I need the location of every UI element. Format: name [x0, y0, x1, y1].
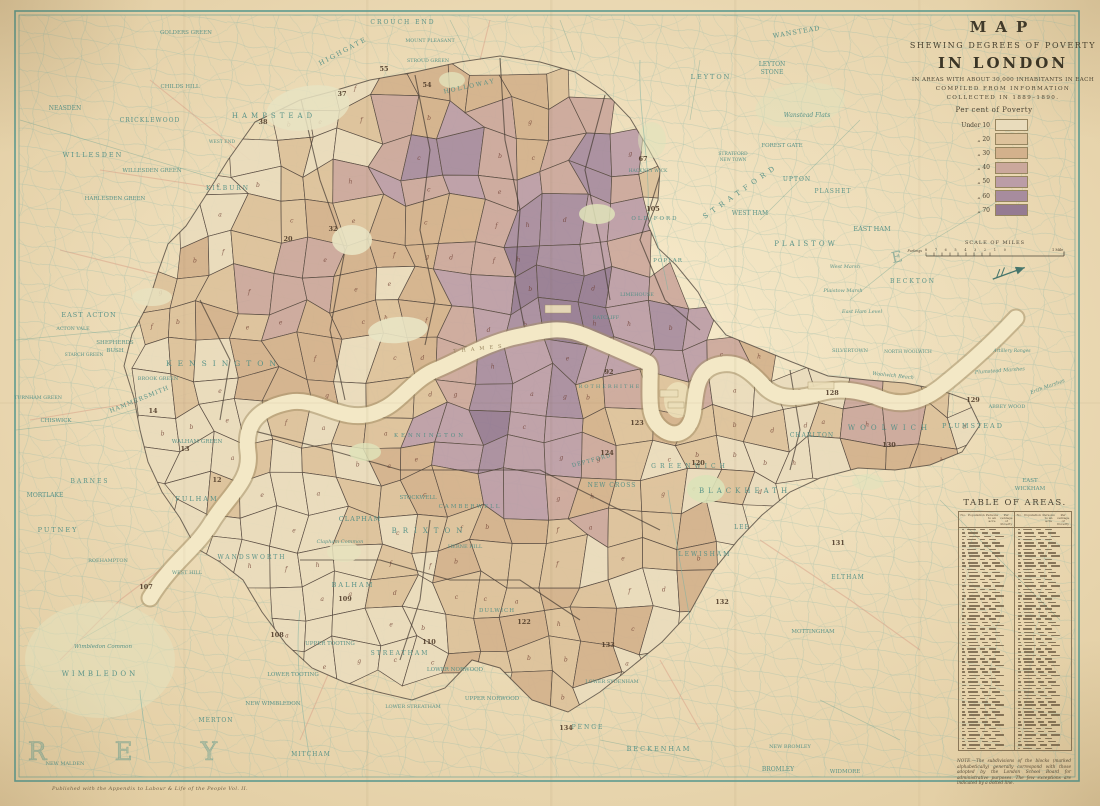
- svg-text:LOWER NORWOOD: LOWER NORWOOD: [427, 667, 484, 673]
- svg-text:g: g: [661, 491, 665, 498]
- svg-text:MORTLAKE: MORTLAKE: [27, 492, 64, 499]
- table-column-group: No.PopulationPersons to an acrePer centa…: [959, 512, 1015, 750]
- legend-swatch: [995, 176, 1028, 188]
- svg-text:32: 32: [328, 225, 337, 233]
- svg-text:1 Mile: 1 Mile: [1052, 248, 1063, 252]
- svg-text:131: 131: [831, 539, 845, 547]
- legend-label: „ 60: [944, 193, 995, 200]
- svg-text:Wanstead Flats: Wanstead Flats: [784, 112, 831, 119]
- svg-text:STARCH GREEN: STARCH GREEN: [65, 352, 104, 358]
- svg-text:LEYTON: LEYTON: [691, 73, 732, 81]
- svg-text:a: a: [515, 598, 519, 605]
- svg-text:MERTON: MERTON: [198, 717, 233, 724]
- svg-text:MOUNT PLEASANT: MOUNT PLEASANT: [405, 38, 455, 44]
- svg-text:d: d: [487, 327, 491, 334]
- map-title: MAP: [905, 18, 1100, 36]
- svg-text:14: 14: [148, 407, 158, 415]
- svg-text:BECKENHAM: BECKENHAM: [627, 745, 692, 753]
- svg-text:e: e: [218, 388, 222, 395]
- svg-text:ELTHAM: ELTHAM: [831, 574, 865, 581]
- svg-text:54: 54: [422, 81, 432, 89]
- svg-text:20: 20: [283, 235, 293, 243]
- svg-text:e: e: [621, 556, 625, 563]
- svg-text:WANDSWORTH: WANDSWORTH: [217, 554, 286, 561]
- legend-item: Under 10: [944, 118, 1044, 132]
- svg-text:NEW BROMLEY: NEW BROMLEY: [769, 744, 811, 750]
- svg-text:UPPER NORWOOD: UPPER NORWOOD: [465, 696, 520, 702]
- svg-text:CHISWICK: CHISWICK: [40, 418, 72, 424]
- svg-text:105: 105: [646, 205, 660, 213]
- svg-text:STONE: STONE: [761, 69, 784, 76]
- svg-text:h: h: [593, 320, 597, 327]
- svg-text:134: 134: [559, 724, 573, 732]
- svg-text:128: 128: [825, 389, 839, 397]
- svg-text:h: h: [491, 363, 495, 370]
- svg-text:SCALE OF MILES: SCALE OF MILES: [965, 240, 1025, 246]
- svg-text:WALHAM GREEN: WALHAM GREEN: [172, 439, 223, 445]
- svg-text:WICKHAM: WICKHAM: [1015, 486, 1046, 492]
- legend-items: Under 10„ 20„ 30„ 40„ 50„ 60„ 70: [944, 118, 1044, 217]
- svg-text:b: b: [527, 655, 531, 662]
- legend-heading: Per cent of Poverty: [944, 106, 1044, 114]
- svg-text:a: a: [384, 431, 388, 438]
- table-row: [959, 747, 1014, 750]
- svg-text:CHARLTON: CHARLTON: [790, 432, 834, 439]
- svg-text:108: 108: [270, 631, 284, 639]
- svg-text:h: h: [349, 178, 353, 185]
- svg-text:a: a: [530, 391, 534, 398]
- svg-text:d: d: [770, 428, 774, 435]
- svg-text:East Ham Level: East Ham Level: [841, 309, 883, 315]
- svg-text:h: h: [627, 321, 631, 328]
- table-note: NOTE.—The subdivisions of the blocks (ma…: [957, 759, 1071, 787]
- svg-text:BLACKHEATH: BLACKHEATH: [699, 487, 791, 495]
- svg-text:RATCLIFF: RATCLIFF: [593, 315, 620, 321]
- svg-text:92: 92: [604, 368, 613, 376]
- svg-text:h: h: [757, 354, 761, 361]
- svg-text:b: b: [189, 424, 193, 431]
- svg-text:12: 12: [212, 476, 221, 484]
- svg-text:e: e: [292, 528, 296, 535]
- svg-text:b: b: [485, 524, 489, 531]
- svg-text:123: 123: [630, 419, 644, 427]
- map-title-london: IN LONDON: [905, 54, 1100, 72]
- svg-text:h: h: [557, 621, 561, 628]
- svg-text:d: d: [393, 590, 397, 597]
- svg-text:67: 67: [638, 155, 647, 163]
- table-column-header: Per centage of Poverty: [1055, 512, 1071, 527]
- svg-text:a: a: [625, 661, 629, 668]
- svg-text:POPLAR: POPLAR: [653, 258, 683, 264]
- svg-text:d: d: [563, 217, 567, 224]
- svg-text:55: 55: [379, 65, 389, 73]
- svg-text:d: d: [421, 355, 425, 362]
- svg-text:d: d: [449, 255, 453, 262]
- svg-text:LEYTON: LEYTON: [759, 61, 786, 68]
- svg-text:BARNES: BARNES: [71, 478, 110, 485]
- svg-text:124: 124: [600, 449, 614, 457]
- svg-text:109: 109: [338, 595, 352, 603]
- map-subtitle: SHEWING DEGREES OF POVERTY: [905, 41, 1100, 50]
- svg-text:KILBURN: KILBURN: [206, 185, 250, 192]
- svg-text:g: g: [453, 392, 457, 399]
- svg-text:a: a: [589, 525, 593, 532]
- svg-text:TURNHAM GREEN: TURNHAM GREEN: [14, 395, 62, 401]
- svg-text:g: g: [559, 454, 563, 461]
- svg-text:a: a: [285, 632, 289, 639]
- svg-text:g: g: [628, 151, 632, 158]
- svg-text:DULWICH: DULWICH: [479, 608, 515, 614]
- svg-text:e: e: [279, 319, 283, 326]
- table-column-group: No.PopulationPersons to an acrePer centa…: [1015, 512, 1071, 750]
- publisher-credit: Published with the Appendix to Labour & …: [52, 786, 248, 792]
- svg-text:ACTON VALE: ACTON VALE: [55, 326, 90, 332]
- table-column-header: Population: [1023, 512, 1041, 527]
- svg-text:CHILDS HILL: CHILDS HILL: [160, 84, 199, 90]
- county-label-surrey: SURREY: [0, 737, 285, 766]
- table-body: No.PopulationPersons to an acrePer centa…: [958, 511, 1072, 751]
- svg-text:HERNE HILL: HERNE HILL: [448, 544, 483, 550]
- svg-text:UPPER TOOTING: UPPER TOOTING: [305, 641, 355, 647]
- svg-text:b: b: [498, 153, 502, 160]
- svg-text:EAST HAM: EAST HAM: [853, 225, 891, 233]
- svg-text:b: b: [586, 395, 590, 402]
- table-column-header: Persons to an acre: [985, 512, 998, 527]
- svg-text:e: e: [354, 287, 358, 294]
- svg-text:NEW TOWN: NEW TOWN: [720, 157, 747, 162]
- svg-text:d: d: [662, 586, 666, 593]
- svg-text:h: h: [316, 562, 320, 569]
- svg-text:KENNINGTON: KENNINGTON: [394, 433, 466, 439]
- svg-text:g: g: [563, 393, 567, 400]
- svg-text:WEST HAM: WEST HAM: [732, 210, 768, 217]
- svg-text:g: g: [357, 658, 361, 665]
- svg-text:b: b: [427, 115, 431, 122]
- svg-text:GREENWICH: GREENWICH: [651, 463, 729, 470]
- map-title-collected-line: COLLECTED IN 1889–1890.: [905, 95, 1100, 101]
- svg-text:PLASHET: PLASHET: [814, 188, 851, 195]
- svg-text:WILLESDEN GREEN: WILLESDEN GREEN: [122, 168, 181, 174]
- legend-swatch: [995, 147, 1028, 159]
- table-column-header: Per centage of Poverty: [999, 512, 1014, 527]
- svg-text:b: b: [561, 695, 565, 702]
- svg-text:HARLESDEN GREEN: HARLESDEN GREEN: [85, 196, 146, 202]
- svg-text:ROEHAMPTON: ROEHAMPTON: [88, 558, 128, 564]
- svg-text:CLAPHAM: CLAPHAM: [339, 515, 381, 523]
- svg-text:Plaistow Marsh: Plaistow Marsh: [822, 288, 862, 294]
- svg-text:SILVERTOWN: SILVERTOWN: [832, 348, 869, 354]
- svg-text:e: e: [246, 324, 250, 331]
- poverty-legend: Per cent of Poverty Under 10„ 20„ 30„ 40…: [944, 106, 1044, 217]
- legend-swatch: [995, 190, 1028, 202]
- svg-text:b: b: [356, 461, 360, 468]
- svg-text:a: a: [320, 596, 324, 603]
- svg-text:HACKNEY WICK: HACKNEY WICK: [629, 168, 668, 174]
- svg-text:b: b: [256, 182, 260, 189]
- svg-text:e: e: [498, 189, 502, 196]
- svg-text:BROOK GREEN: BROOK GREEN: [138, 376, 179, 382]
- legend-label: „ 30: [944, 150, 995, 157]
- svg-text:37: 37: [337, 90, 346, 98]
- legend-swatch: [995, 162, 1028, 174]
- svg-text:WIDMORE: WIDMORE: [830, 769, 861, 775]
- svg-text:h: h: [248, 563, 252, 570]
- svg-text:FULHAM: FULHAM: [175, 495, 218, 503]
- svg-text:e: e: [323, 664, 327, 671]
- svg-text:d: d: [591, 286, 595, 293]
- table-column-header: No.: [1015, 512, 1023, 527]
- svg-text:132: 132: [715, 598, 729, 606]
- legend-item: „ 20: [944, 132, 1044, 146]
- svg-text:b: b: [176, 319, 180, 326]
- svg-text:38: 38: [258, 118, 268, 126]
- svg-text:107: 107: [139, 583, 153, 591]
- svg-text:b: b: [564, 656, 568, 663]
- svg-text:Wimbledon Common: Wimbledon Common: [74, 644, 132, 650]
- legend-label: „ 20: [944, 136, 995, 143]
- svg-text:Artillery Ranges: Artillery Ranges: [992, 348, 1031, 354]
- svg-text:BUSH: BUSH: [106, 348, 123, 354]
- svg-text:UPTON: UPTON: [783, 176, 811, 183]
- svg-text:CRICKLEWOOD: CRICKLEWOOD: [120, 117, 181, 124]
- svg-text:PUTNEY: PUTNEY: [38, 526, 79, 534]
- svg-text:130: 130: [882, 441, 896, 449]
- svg-text:133: 133: [601, 641, 615, 649]
- svg-text:e: e: [226, 417, 230, 424]
- svg-text:b: b: [669, 325, 673, 332]
- map-title-compiled-line: COMPILED FROM INFORMATION: [905, 86, 1100, 92]
- svg-text:NEW WIMBLEDON: NEW WIMBLEDON: [245, 701, 300, 707]
- svg-text:PENGE: PENGE: [572, 724, 605, 731]
- svg-text:120: 120: [691, 459, 705, 467]
- legend-item: „ 40: [944, 161, 1044, 175]
- svg-text:EAST: EAST: [1022, 478, 1038, 484]
- svg-text:e: e: [566, 356, 570, 363]
- svg-text:MOTTINGHAM: MOTTINGHAM: [791, 629, 835, 635]
- table-title: TABLE OF AREAS.: [958, 498, 1072, 508]
- svg-text:h: h: [792, 460, 796, 467]
- legend-label: Under 10: [944, 122, 995, 129]
- svg-text:h: h: [526, 222, 530, 229]
- svg-text:a: a: [231, 455, 235, 462]
- svg-text:b: b: [528, 286, 532, 293]
- svg-text:BRIXTON: BRIXTON: [392, 527, 469, 535]
- svg-text:b: b: [763, 460, 767, 467]
- svg-text:a: a: [317, 490, 321, 497]
- svg-text:NORTH WOOLWICH: NORTH WOOLWICH: [884, 349, 932, 355]
- svg-text:122: 122: [517, 618, 531, 626]
- svg-text:d: d: [428, 392, 432, 399]
- svg-text:e: e: [389, 622, 393, 629]
- map-title-areas-line: IN AREAS WITH ABOUT 30,000 INHABITANTS I…: [905, 77, 1100, 83]
- svg-text:a: a: [322, 425, 326, 432]
- svg-text:WEST END: WEST END: [209, 139, 236, 145]
- legend-swatch: [995, 204, 1028, 216]
- svg-text:STROUD GREEN: STROUD GREEN: [407, 58, 449, 64]
- svg-text:BECKTON: BECKTON: [890, 278, 936, 285]
- svg-text:e: e: [323, 257, 327, 264]
- svg-text:EAST ACTON: EAST ACTON: [61, 311, 116, 319]
- svg-text:PLUMSTEAD: PLUMSTEAD: [942, 422, 1004, 430]
- table-row: [1015, 747, 1071, 750]
- svg-text:WEST HILL: WEST HILL: [172, 570, 203, 576]
- svg-text:WILLESDEN: WILLESDEN: [63, 151, 124, 159]
- svg-text:LOWER TOOTING: LOWER TOOTING: [267, 672, 318, 678]
- svg-text:e: e: [352, 218, 356, 225]
- legend-label: „ 50: [944, 178, 995, 185]
- map-canvas: gfbbbbcafeeaebfechehbcefefaeefgaahaeffhe…: [0, 0, 1100, 806]
- svg-text:ABBEY WOOD: ABBEY WOOD: [988, 404, 1026, 410]
- svg-text:CROUCH END: CROUCH END: [370, 19, 435, 26]
- legend-item: „ 70: [944, 203, 1044, 217]
- svg-text:LEWISHAM: LEWISHAM: [679, 551, 732, 558]
- svg-text:NEW CROSS: NEW CROSS: [588, 482, 637, 489]
- table-column-header: Population: [967, 512, 985, 527]
- svg-text:ROTHERHITHE: ROTHERHITHE: [579, 384, 642, 390]
- svg-text:STOCKWELL: STOCKWELL: [399, 495, 436, 501]
- legend-swatch: [995, 119, 1028, 131]
- table-column-header: No.: [959, 512, 967, 527]
- svg-text:HAMPSTEAD: HAMPSTEAD: [232, 112, 316, 120]
- svg-text:a: a: [821, 419, 825, 426]
- svg-text:110: 110: [422, 638, 436, 646]
- table-of-areas: TABLE OF AREAS. No.PopulationPersons to …: [958, 498, 1072, 751]
- svg-text:g: g: [528, 119, 532, 126]
- legend-item: „ 50: [944, 175, 1044, 189]
- legend-item: „ 30: [944, 146, 1044, 160]
- svg-text:MITCHAM: MITCHAM: [291, 751, 331, 758]
- svg-text:GOLDERS GREEN: GOLDERS GREEN: [160, 30, 212, 36]
- svg-text:g: g: [556, 495, 560, 502]
- legend-label: „ 40: [944, 164, 995, 171]
- svg-text:d: d: [804, 423, 808, 430]
- svg-text:Clapham Common: Clapham Common: [317, 539, 364, 545]
- svg-text:NEASDEN: NEASDEN: [49, 105, 82, 112]
- svg-text:b: b: [421, 625, 425, 632]
- svg-text:b: b: [454, 559, 458, 566]
- svg-text:b: b: [193, 257, 197, 264]
- svg-text:BROMLEY: BROMLEY: [762, 766, 795, 773]
- svg-text:LOWER STREATHAM: LOWER STREATHAM: [385, 704, 441, 710]
- legend-label: „ 70: [944, 207, 995, 214]
- svg-text:FOREST GATE: FOREST GATE: [761, 143, 802, 149]
- svg-text:LOWER SYDENHAM: LOWER SYDENHAM: [585, 679, 638, 685]
- booth-poverty-map: gfbbbbcafeeaebfechehbcefefaeefgaahaeffhe…: [0, 0, 1100, 806]
- svg-text:LIMEHOUSE: LIMEHOUSE: [620, 292, 654, 298]
- svg-text:West Marsh: West Marsh: [830, 264, 860, 270]
- svg-text:WIMBLEDON: WIMBLEDON: [62, 670, 139, 678]
- legend-swatch: [995, 133, 1028, 145]
- svg-text:e: e: [388, 281, 392, 288]
- svg-text:e: e: [260, 492, 264, 499]
- svg-text:8 7 6 5 4 3 2 1 0: 8 7 6 5 4 3 2 1 0: [925, 248, 1009, 252]
- svg-text:CAMBERWELL: CAMBERWELL: [439, 504, 502, 510]
- map-title-block: MAP SHEWING DEGREES OF POVERTY IN LONDON…: [905, 18, 1100, 101]
- svg-text:OLD FORD: OLD FORD: [631, 216, 678, 222]
- svg-text:PLAISTOW: PLAISTOW: [774, 240, 838, 248]
- svg-text:e: e: [415, 456, 419, 463]
- svg-text:STREATHAM: STREATHAM: [371, 650, 430, 657]
- svg-text:a: a: [218, 211, 222, 218]
- svg-text:SHEPHERDS: SHEPHERDS: [96, 340, 134, 346]
- table-column-header: Persons to an acre: [1042, 512, 1055, 527]
- legend-item: „ 60: [944, 189, 1044, 203]
- svg-text:b: b: [161, 430, 165, 437]
